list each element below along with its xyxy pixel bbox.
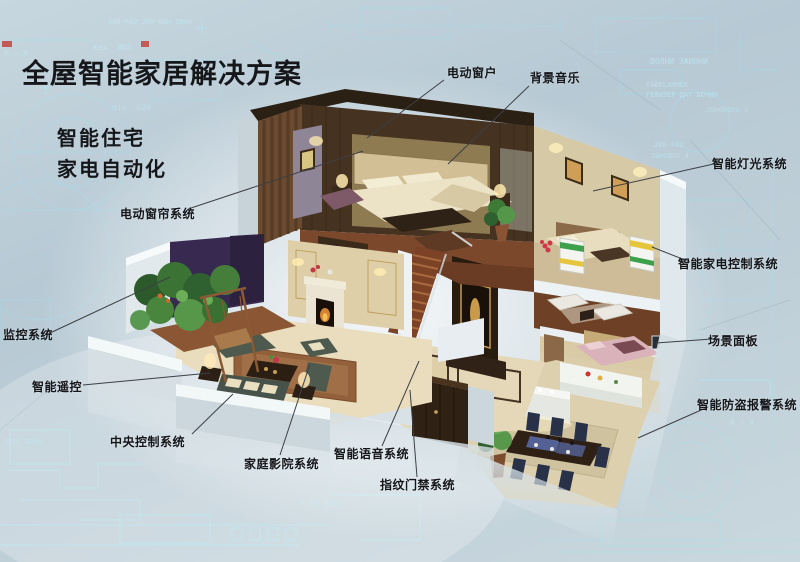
appliance-cabinet [560, 238, 584, 274]
callout-electric-curtain-system: 电动窗帘系统 [120, 205, 195, 222]
table-lamp-glow [204, 353, 216, 369]
wall-lamp-glow [374, 268, 386, 276]
callout-central-control-system: 中央控制系统 [110, 433, 185, 450]
poster-subtitle-line1: 智能住宅 [57, 122, 145, 151]
callout-smart-appliance-control-system: 智能家电控制系统 [678, 255, 778, 272]
table-lamp-glow [298, 372, 310, 388]
callout-scene-panel: 场景面板 [708, 332, 758, 349]
callout-smart-voice-system: 智能语音系统 [334, 445, 409, 462]
wall-lamp-glow [549, 143, 563, 153]
callout-smart-lighting-system: 智能灯光系统 [712, 155, 787, 172]
poster-title: 全屋智能家居解决方案 [22, 52, 302, 91]
poster-canvas: 200-FA2 200-BOH 200nmax. 865A – Amin. 82… [0, 0, 800, 562]
wall-lamp-glow [292, 258, 304, 266]
callout-smart-remote-control: 智能遥控 [32, 378, 82, 395]
wall-lamp-glow [633, 167, 647, 177]
callout-smart-burglar-alarm-system: 智能防盗报警系统 [697, 396, 797, 413]
poster-subtitle-line2: 家电自动化 [57, 153, 167, 182]
callout-monitoring-system: 监控系统 [3, 326, 53, 343]
bedside-lamp-glow [494, 184, 506, 198]
callout-background-music: 背景音乐 [530, 69, 580, 86]
fingerprint-lock [434, 410, 438, 414]
bedside-lamp-glow [336, 174, 348, 188]
callout-home-theater-system: 家庭影院系统 [244, 455, 319, 472]
callout-fingerprint-access-system: 指纹门禁系统 [380, 476, 455, 493]
wall-lamp-glow [309, 136, 323, 146]
callout-electric-window: 电动窗户 [447, 64, 497, 81]
appliance-cabinet [630, 236, 654, 272]
